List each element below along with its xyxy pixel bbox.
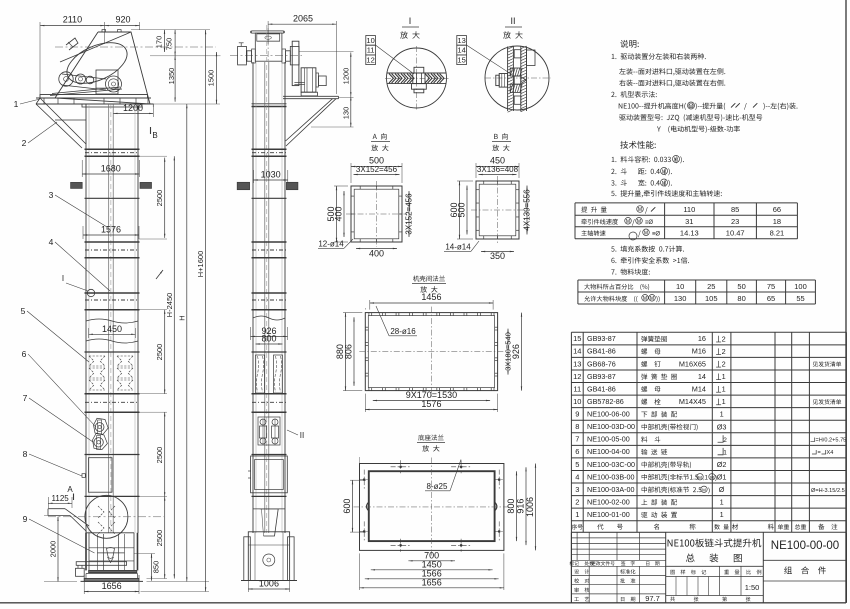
svg-text:8: 8 bbox=[575, 422, 579, 431]
svg-text:II: II bbox=[300, 431, 304, 440]
svg-text:1680: 1680 bbox=[101, 164, 121, 174]
svg-text:8-ø25: 8-ø25 bbox=[427, 482, 448, 491]
svg-text:1:50: 1:50 bbox=[745, 583, 760, 592]
svg-text:55: 55 bbox=[796, 294, 804, 303]
svg-text:600: 600 bbox=[342, 499, 352, 514]
svg-text:NE100-03C-00: NE100-03C-00 bbox=[587, 460, 635, 469]
svg-text:I: I bbox=[62, 274, 64, 283]
svg-text:M: M bbox=[710, 475, 714, 480]
svg-text:M: M bbox=[662, 181, 666, 187]
svg-text:2500: 2500 bbox=[155, 190, 164, 207]
svg-text:4: 4 bbox=[49, 237, 54, 247]
svg-text:8.21: 8.21 bbox=[770, 229, 785, 238]
svg-text:NE100-03D-00: NE100-03D-00 bbox=[587, 422, 635, 431]
svg-text:1: 1 bbox=[720, 510, 724, 519]
svg-text:=H/0.2+5.75: =H/0.2+5.75 bbox=[816, 438, 847, 444]
svg-text:28-ø16: 28-ø16 bbox=[390, 327, 416, 336]
svg-text:806: 806 bbox=[344, 344, 354, 359]
svg-text:I: I bbox=[409, 16, 412, 26]
svg-text:2: 2 bbox=[22, 138, 27, 148]
svg-text:GB93-87: GB93-87 bbox=[587, 334, 616, 343]
svg-text:NE100-03A-00: NE100-03A-00 bbox=[587, 485, 635, 494]
svg-text:2110: 2110 bbox=[63, 15, 82, 25]
svg-text:11: 11 bbox=[367, 46, 375, 55]
svg-text:450: 450 bbox=[490, 156, 505, 166]
svg-text:400: 400 bbox=[334, 206, 344, 221]
svg-text:NE100-02-00: NE100-02-00 bbox=[587, 497, 630, 506]
svg-text:2000: 2000 bbox=[49, 541, 58, 558]
svg-text:M16X65: M16X65 bbox=[679, 359, 706, 368]
svg-text:18: 18 bbox=[773, 217, 781, 226]
svg-text:M: M bbox=[650, 296, 654, 302]
svg-text:3: 3 bbox=[575, 485, 579, 494]
svg-text:1: 1 bbox=[723, 450, 727, 457]
svg-text:NE100-03B-00: NE100-03B-00 bbox=[587, 472, 635, 481]
svg-text:1: 1 bbox=[14, 99, 19, 109]
svg-text:NE100-00-00: NE100-00-00 bbox=[771, 540, 839, 552]
svg-text:500: 500 bbox=[457, 202, 467, 217]
svg-text:H-2450: H-2450 bbox=[165, 293, 174, 318]
svg-text:1656: 1656 bbox=[422, 577, 442, 587]
svg-text:1: 1 bbox=[575, 510, 579, 519]
svg-text:1656: 1656 bbox=[102, 581, 122, 591]
svg-text:M: M bbox=[698, 475, 702, 480]
svg-text:110: 110 bbox=[683, 205, 695, 214]
svg-text:M14X45: M14X45 bbox=[679, 397, 706, 406]
svg-text:13: 13 bbox=[573, 359, 581, 368]
svg-text:H: H bbox=[178, 315, 187, 320]
svg-text:1006: 1006 bbox=[525, 497, 535, 517]
svg-text:10: 10 bbox=[366, 36, 374, 45]
svg-text:400: 400 bbox=[369, 249, 384, 259]
svg-text:916: 916 bbox=[516, 499, 526, 514]
svg-text:1200: 1200 bbox=[341, 68, 350, 85]
svg-text:1006: 1006 bbox=[259, 579, 279, 589]
svg-text:11: 11 bbox=[573, 384, 581, 393]
svg-text:1456: 1456 bbox=[421, 292, 441, 302]
svg-text:M16: M16 bbox=[692, 347, 706, 356]
svg-text:=: = bbox=[818, 450, 821, 456]
svg-text:5: 5 bbox=[575, 460, 579, 469]
svg-text:M: M bbox=[643, 296, 647, 302]
svg-text:NE100-06-00: NE100-06-00 bbox=[587, 410, 630, 419]
svg-text:7: 7 bbox=[575, 435, 579, 444]
svg-text:14.13: 14.13 bbox=[680, 229, 699, 238]
svg-text:1125: 1125 bbox=[52, 494, 70, 503]
svg-text:GB68-76: GB68-76 bbox=[587, 359, 616, 368]
svg-text:50: 50 bbox=[737, 282, 745, 291]
svg-text:65: 65 bbox=[767, 294, 775, 303]
svg-text:B: B bbox=[152, 131, 157, 140]
svg-text:NE100-04-00: NE100-04-00 bbox=[587, 447, 630, 456]
svg-text:2: 2 bbox=[575, 497, 579, 506]
svg-text:M: M bbox=[644, 231, 648, 237]
svg-text:,1: ,1 bbox=[703, 475, 709, 481]
svg-text:6: 6 bbox=[575, 447, 579, 456]
svg-text:): ) bbox=[708, 488, 710, 494]
svg-text:1200: 1200 bbox=[123, 103, 143, 113]
svg-text:1576: 1576 bbox=[421, 399, 441, 409]
svg-text:1450: 1450 bbox=[102, 324, 122, 334]
svg-text:1: 1 bbox=[720, 498, 724, 507]
svg-text:14-ø14: 14-ø14 bbox=[445, 243, 471, 252]
svg-text:13: 13 bbox=[457, 36, 465, 45]
svg-text:M: M bbox=[638, 207, 642, 213]
svg-text:800: 800 bbox=[506, 499, 516, 514]
svg-text:10.47: 10.47 bbox=[726, 229, 745, 238]
svg-text:6: 6 bbox=[22, 349, 27, 359]
svg-text:105: 105 bbox=[705, 294, 718, 303]
svg-text:1350: 1350 bbox=[167, 68, 176, 85]
svg-text:3X152=456: 3X152=456 bbox=[356, 165, 398, 174]
svg-text:8: 8 bbox=[23, 449, 28, 459]
svg-text:2: 2 bbox=[722, 347, 726, 356]
svg-text:M: M bbox=[637, 219, 641, 225]
svg-text:10: 10 bbox=[573, 397, 581, 406]
svg-text:3X136=408: 3X136=408 bbox=[477, 165, 519, 174]
svg-text:130: 130 bbox=[674, 294, 687, 303]
svg-text:GB41-86: GB41-86 bbox=[587, 347, 616, 356]
svg-text:85: 85 bbox=[731, 205, 739, 214]
svg-text:9: 9 bbox=[23, 514, 28, 524]
svg-text:12: 12 bbox=[573, 372, 581, 381]
svg-text:500: 500 bbox=[369, 156, 384, 166]
svg-text:14: 14 bbox=[698, 372, 706, 381]
svg-text:Ø1: Ø1 bbox=[717, 473, 727, 482]
svg-text:Ø=H-3.15/2.5: Ø=H-3.15/2.5 bbox=[811, 488, 845, 494]
svg-text:NE100-01-00: NE100-01-00 bbox=[587, 510, 630, 519]
svg-text:926: 926 bbox=[511, 344, 521, 359]
svg-text:3: 3 bbox=[49, 190, 54, 200]
svg-text:7: 7 bbox=[23, 393, 28, 403]
svg-text:1: 1 bbox=[722, 385, 726, 394]
svg-text:M14: M14 bbox=[692, 384, 706, 393]
svg-text:2500: 2500 bbox=[155, 447, 164, 464]
svg-text:75: 75 bbox=[767, 282, 775, 291]
svg-text:4: 4 bbox=[575, 472, 579, 481]
svg-text:H+1600: H+1600 bbox=[196, 251, 205, 277]
svg-text:≡Ø: ≡Ø bbox=[652, 232, 661, 238]
svg-text:14: 14 bbox=[457, 46, 465, 55]
svg-text:2: 2 bbox=[723, 437, 727, 444]
svg-text:A: A bbox=[67, 485, 73, 494]
svg-text:31: 31 bbox=[685, 217, 693, 226]
svg-text:X4: X4 bbox=[827, 450, 834, 456]
svg-text:100: 100 bbox=[794, 282, 807, 291]
svg-text:750: 750 bbox=[165, 38, 174, 51]
svg-text:2500: 2500 bbox=[155, 344, 164, 361]
svg-text:9: 9 bbox=[575, 410, 579, 419]
svg-text:M: M bbox=[626, 219, 630, 225]
svg-text:170: 170 bbox=[155, 36, 164, 49]
svg-text:2500: 2500 bbox=[155, 530, 164, 547]
svg-text:GB5782-86: GB5782-86 bbox=[587, 397, 624, 406]
svg-text:2065: 2065 bbox=[293, 14, 313, 24]
svg-text:1: 1 bbox=[720, 410, 724, 419]
svg-text:Ø3: Ø3 bbox=[717, 422, 727, 431]
svg-text:M: M bbox=[674, 157, 678, 163]
svg-text:1500: 1500 bbox=[207, 70, 216, 87]
svg-text:1576: 1576 bbox=[101, 225, 121, 235]
svg-text:1: 1 bbox=[722, 372, 726, 381]
svg-text:2: 2 bbox=[722, 334, 726, 343]
svg-text:25: 25 bbox=[707, 282, 715, 291]
svg-text:Ø: Ø bbox=[719, 485, 725, 494]
svg-text:M: M bbox=[662, 169, 666, 175]
svg-text:15: 15 bbox=[573, 334, 581, 343]
svg-text:12-ø14: 12-ø14 bbox=[318, 240, 344, 249]
svg-text:GB93-87: GB93-87 bbox=[587, 372, 616, 381]
svg-text:3X152=456: 3X152=456 bbox=[405, 193, 414, 235]
svg-text:): ) bbox=[715, 475, 717, 481]
svg-text:GB41-86: GB41-86 bbox=[587, 384, 616, 393]
svg-text:M: M bbox=[689, 104, 693, 110]
svg-text:850: 850 bbox=[151, 561, 160, 574]
svg-text:10: 10 bbox=[676, 282, 684, 291]
svg-text:≡Ø: ≡Ø bbox=[645, 220, 654, 226]
svg-text:14: 14 bbox=[573, 347, 581, 356]
svg-text:4X139=556: 4X139=556 bbox=[523, 189, 532, 231]
svg-text:1: 1 bbox=[722, 397, 726, 406]
svg-text:16: 16 bbox=[698, 334, 706, 343]
svg-text:NE100-05-00: NE100-05-00 bbox=[587, 435, 630, 444]
svg-text:130: 130 bbox=[341, 107, 350, 120]
svg-text:12: 12 bbox=[366, 55, 374, 64]
svg-text:Ø2: Ø2 bbox=[717, 460, 727, 469]
svg-text:97.7: 97.7 bbox=[645, 594, 660, 603]
svg-text:II: II bbox=[510, 16, 515, 26]
svg-text:M: M bbox=[702, 488, 706, 493]
svg-text:5: 5 bbox=[21, 306, 26, 316]
svg-text:2: 2 bbox=[722, 360, 726, 369]
svg-text:15: 15 bbox=[457, 55, 465, 64]
svg-text:800: 800 bbox=[261, 334, 276, 344]
svg-text:1030: 1030 bbox=[261, 170, 281, 180]
svg-text:350: 350 bbox=[490, 251, 505, 261]
svg-text:23: 23 bbox=[731, 217, 739, 226]
svg-text:920: 920 bbox=[115, 15, 130, 25]
svg-text:66: 66 bbox=[773, 205, 781, 214]
svg-text:80: 80 bbox=[737, 294, 745, 303]
